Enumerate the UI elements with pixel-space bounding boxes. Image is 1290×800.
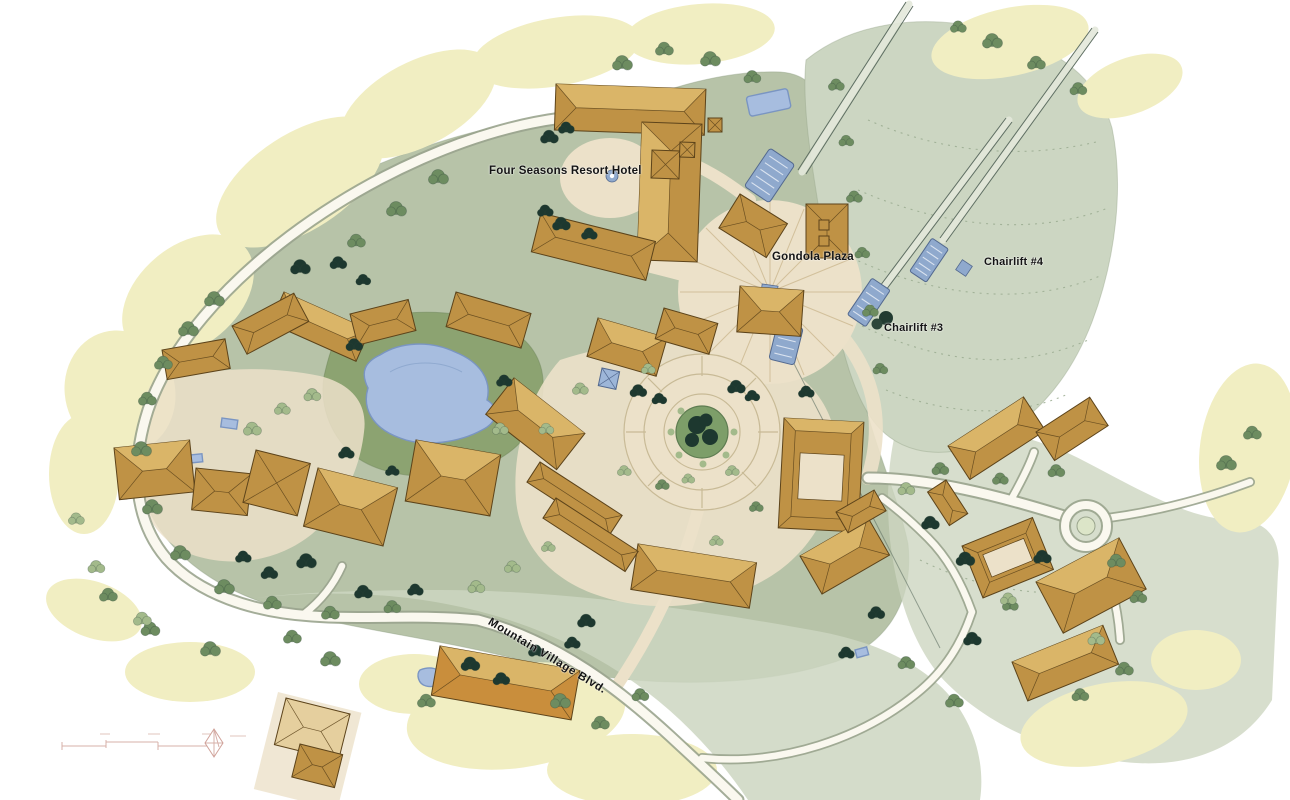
label-gondola-plaza: Gondola Plaza <box>772 251 854 263</box>
scale-north-group <box>62 729 246 757</box>
label-chairlift-3: Chairlift #3 <box>884 322 943 334</box>
label-chairlift-4: Chairlift #4 <box>984 256 1043 268</box>
label-four-seasons-resort-hotel: Four Seasons Resort Hotel <box>489 165 642 177</box>
resort-site-plan: Four Seasons Resort Hotel Gondola Plaza … <box>0 0 1290 800</box>
central-plaza-circle <box>624 354 780 510</box>
north-arrow-icon <box>205 729 223 757</box>
site-plan-artwork <box>0 0 1290 800</box>
